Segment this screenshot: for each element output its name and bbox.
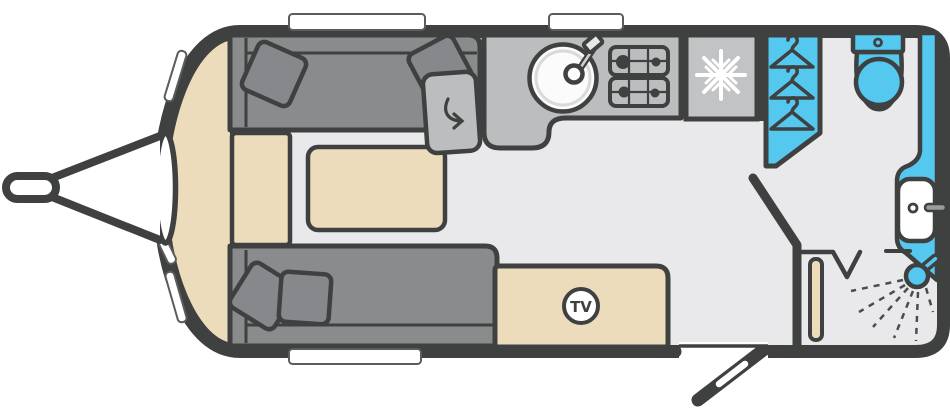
tow-hitch xyxy=(6,133,176,243)
hitch-coupling xyxy=(6,176,56,199)
hob-icon xyxy=(610,47,668,106)
burner xyxy=(619,87,630,98)
a-frame-drawbar xyxy=(52,136,160,240)
front-sofa-bottom xyxy=(227,246,497,346)
burner xyxy=(616,55,630,69)
tv-label: TV xyxy=(570,298,592,316)
toilet-bowl xyxy=(856,59,902,105)
floorplan-canvas: TV xyxy=(0,0,950,420)
caravan-floorplan: TV xyxy=(0,0,950,420)
window-bottom-front xyxy=(289,349,421,364)
washroom-door xyxy=(810,259,822,340)
table xyxy=(308,147,445,230)
cushion xyxy=(278,271,331,324)
window-top-front xyxy=(289,14,425,30)
shower-head-icon xyxy=(906,265,928,287)
burner xyxy=(652,58,661,67)
toilet-cistern xyxy=(853,33,903,52)
snowflake-icon xyxy=(697,51,745,99)
tv-unit: TV xyxy=(495,266,668,347)
burner xyxy=(651,89,660,98)
fridge-freezer xyxy=(686,35,757,119)
front-chest xyxy=(232,133,290,245)
swivel-worktop xyxy=(422,71,480,154)
toilet-icon xyxy=(853,33,903,109)
swivel-top xyxy=(422,71,480,154)
entrance-door xyxy=(669,342,779,400)
window-top-kitchen xyxy=(549,14,623,30)
